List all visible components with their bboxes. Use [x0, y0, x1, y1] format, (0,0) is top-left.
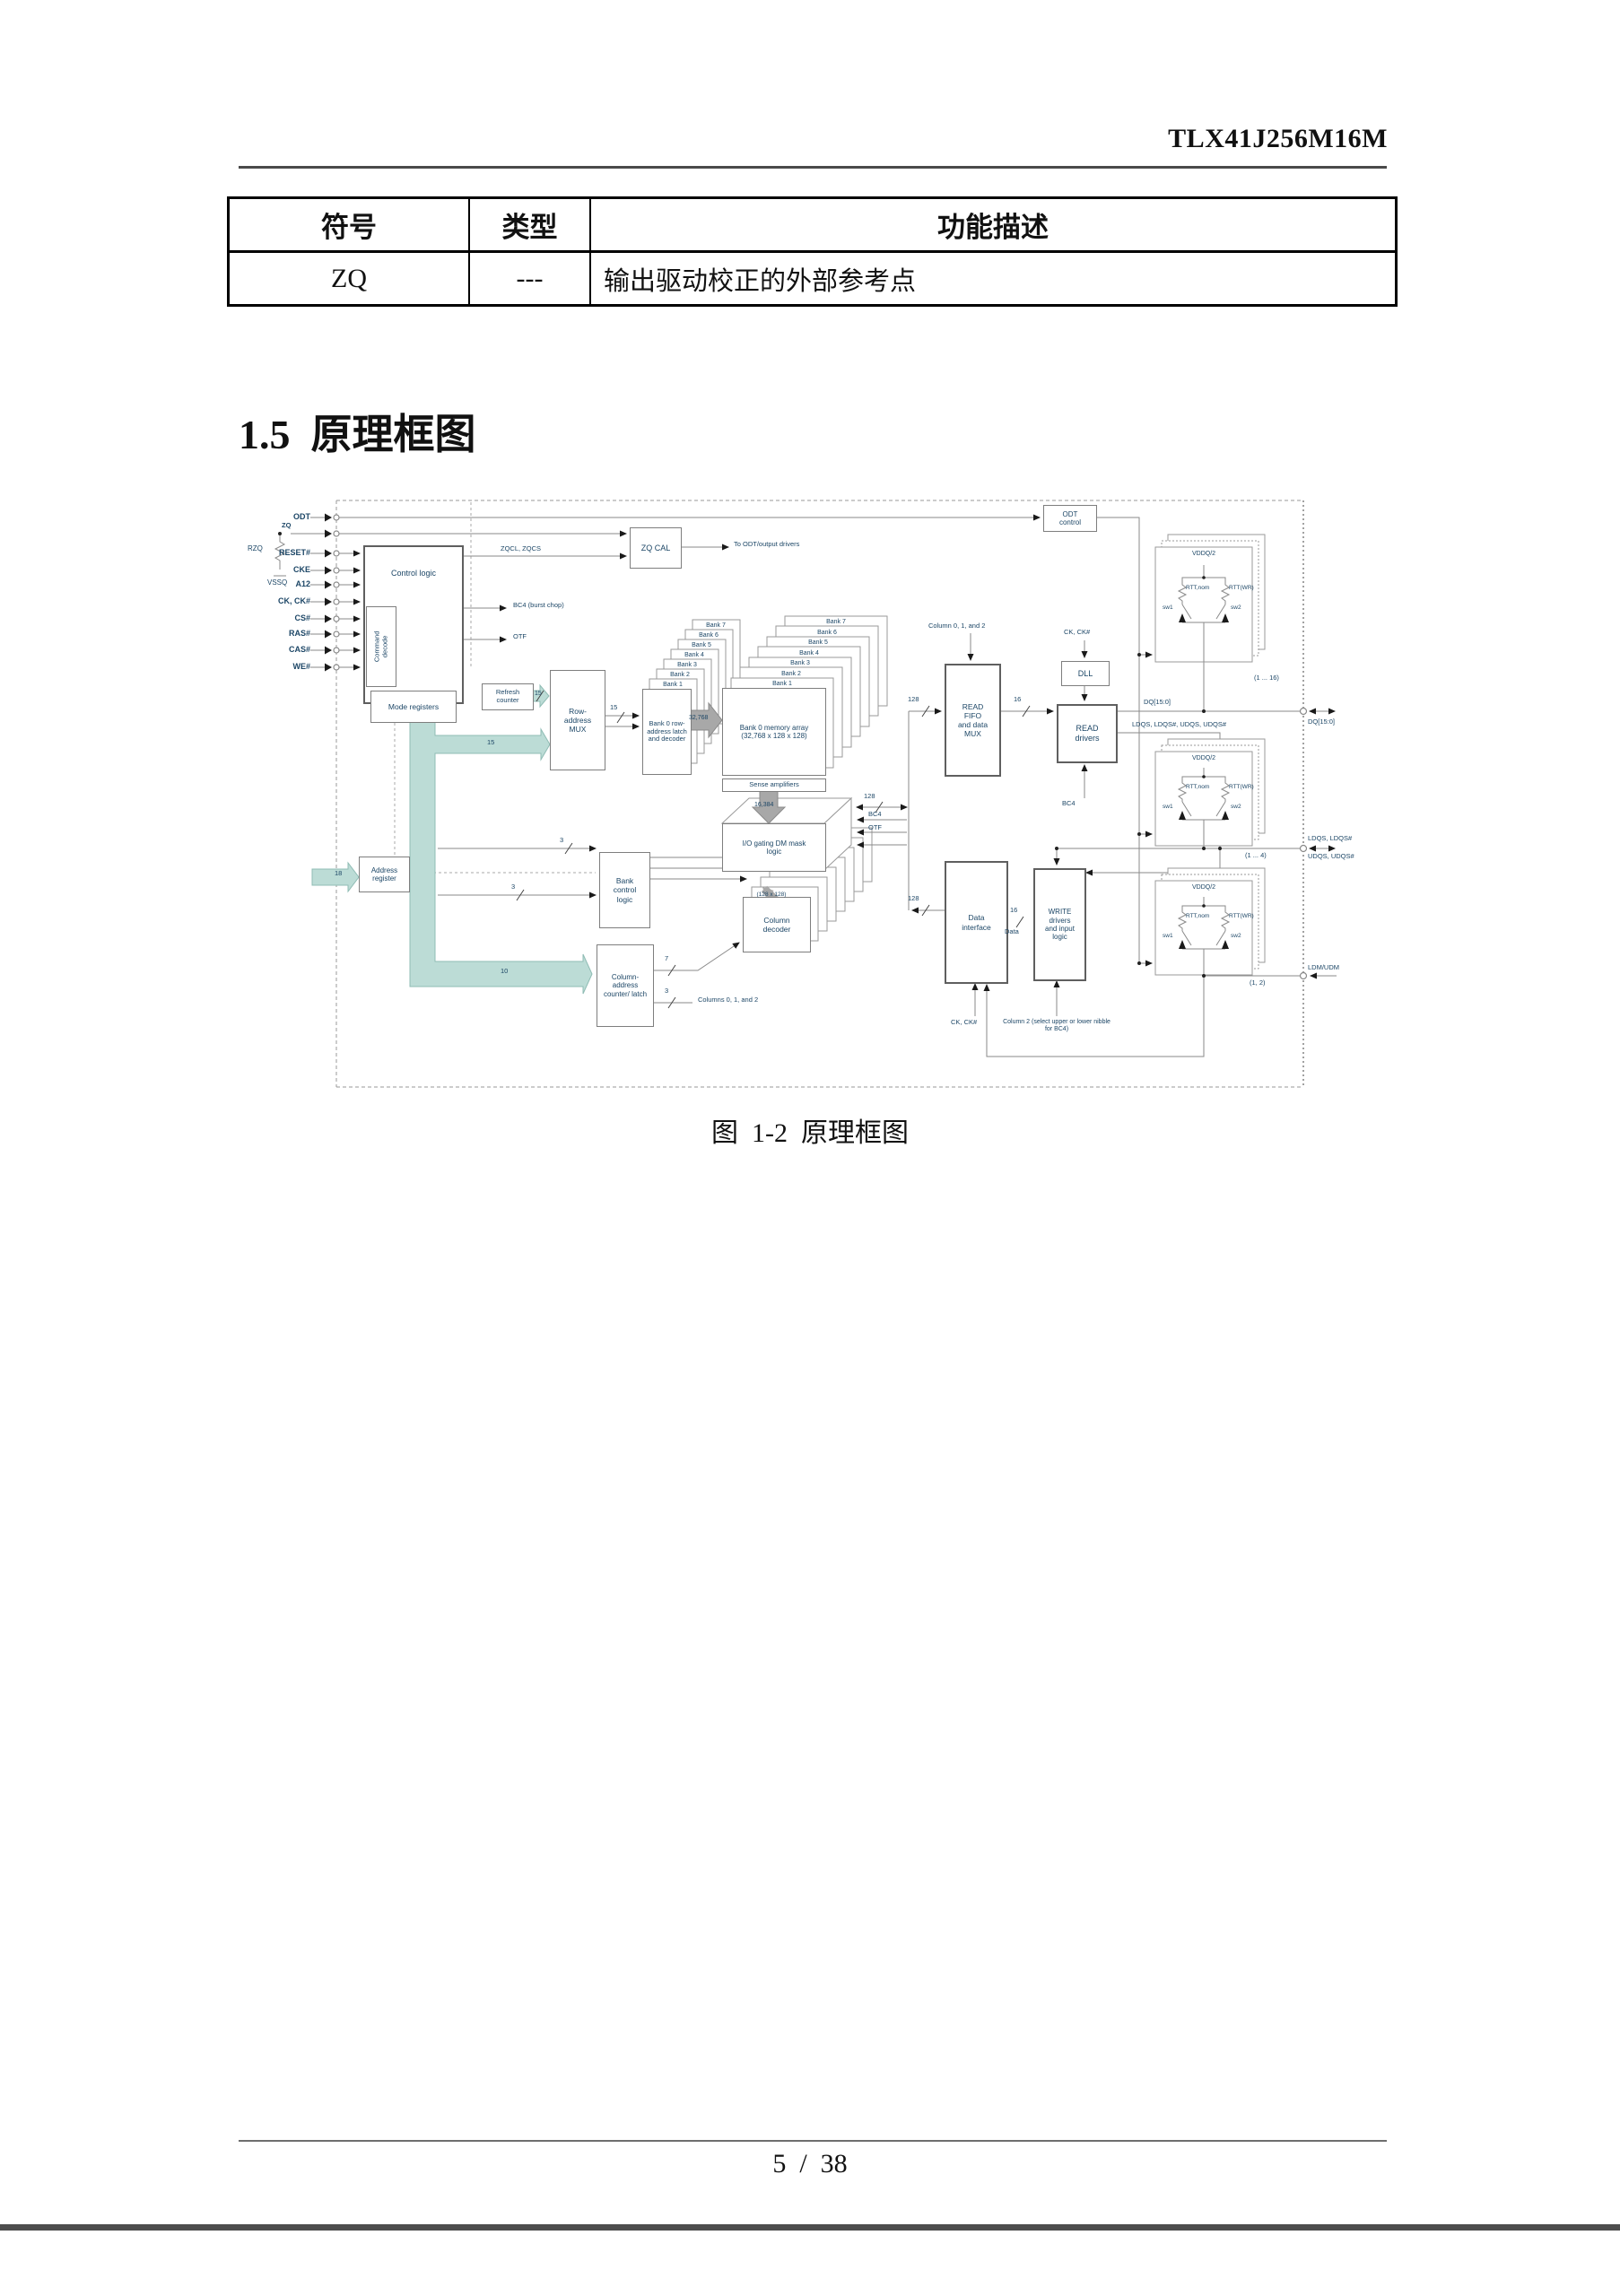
- column-address-counter-block: Column- address counter/ latch: [597, 944, 654, 1027]
- pin-label-cs: CS#: [269, 613, 310, 622]
- sw2-label-dq: sw2: [1231, 604, 1241, 611]
- bank-control-block: Bank control logic: [599, 852, 650, 928]
- bank-label: Bank 7: [826, 619, 846, 625]
- col-header-description: 功能描述: [591, 199, 1395, 250]
- address-register-block: Address register: [359, 857, 410, 892]
- pin-label-ck: CK, CK#: [269, 596, 310, 605]
- pin-label-zq: ZQ: [282, 522, 291, 529]
- read-fifo-block: READ FIFO and data MUX: [945, 664, 1001, 777]
- figure-caption: 图 1-2 原理框图: [0, 1110, 1620, 1150]
- write-drivers-block: WRITE drivers and input logic: [1033, 868, 1086, 981]
- sw2-label-dm: sw2: [1231, 933, 1241, 939]
- dll-block: DLL: [1061, 661, 1110, 686]
- fifo-128-label: 128: [908, 696, 919, 703]
- command-decode-block: Command decode: [366, 606, 396, 687]
- page-number: 5 / 38: [0, 2149, 1620, 2179]
- bank-bus-width-a: 3: [560, 837, 563, 844]
- dqs-boundary-pad: [1301, 846, 1307, 852]
- col-low-width: 3: [665, 987, 668, 995]
- bank-bus-width-b: 3: [511, 883, 515, 891]
- bank-label: Bank 6: [817, 630, 837, 636]
- doc-number: TLX41J256M16M: [1168, 124, 1388, 154]
- row-32768-label: 32,768: [689, 715, 708, 722]
- col-128x128-label: (128 x 128): [753, 891, 789, 898]
- bank-label: Bank 4: [684, 652, 704, 658]
- pin-label-cke: CKE: [269, 565, 310, 574]
- sense-amplifiers-block: Sense amplifiers: [722, 778, 826, 792]
- vddq-label-dqs: VDDQ/2: [1179, 755, 1229, 762]
- rtt-nom-label-dm: RTT,nom: [1186, 913, 1209, 919]
- bank-label: Bank 2: [670, 672, 690, 678]
- fifo-16-label: 16: [1014, 696, 1021, 703]
- ext-ldqs-label: LDQS, LDQS#: [1308, 835, 1352, 842]
- count-dqs-label: (1 ... 4): [1245, 852, 1267, 859]
- row-address-mux-block: Row- address MUX: [550, 670, 605, 770]
- header-rule: [239, 166, 1387, 169]
- ext-dm-label: LDM/UDM: [1308, 964, 1339, 971]
- mux-bus-width: 15: [610, 704, 617, 711]
- count-dq-label: (1 ... 16): [1254, 674, 1279, 682]
- bottom-bar: [0, 2224, 1620, 2231]
- refresh-counter-block: Refresh counter: [482, 683, 534, 710]
- rtt-wr-label-dm: RTT(WR): [1229, 913, 1254, 919]
- zq-cal-block: ZQ CAL: [630, 527, 682, 569]
- bank-label: Bank 5: [692, 642, 711, 648]
- to-odt-drivers-label: To ODT/output drivers: [734, 541, 799, 548]
- bank-label: Bank 6: [699, 632, 719, 639]
- cell-symbol: ZQ: [230, 253, 468, 304]
- vddq-label-dq: VDDQ/2: [1179, 551, 1229, 558]
- rtt-wr-label-dq: RTT(WR): [1229, 585, 1254, 591]
- io-gating-block: I/O gating DM mask logic: [722, 823, 826, 872]
- block-diagram: Bank 7 Bank 6 Bank 5 Bank 4 Bank 3 Bank …: [269, 491, 1386, 1094]
- col-header-type: 类型: [468, 199, 591, 250]
- otf-label: OTF: [513, 633, 527, 640]
- section-title: 1.5 原理框图: [239, 402, 476, 461]
- refresh-bus-width: 15: [535, 691, 542, 698]
- bank-label: Bank 4: [799, 650, 819, 657]
- odt-control-block: ODT control: [1043, 505, 1097, 532]
- addr-bus-width: 18: [335, 870, 342, 877]
- rtt-nom-label-dq: RTT,nom: [1186, 585, 1209, 591]
- column2-note-label: Column 2 (select upper or lower nibble f…: [1003, 1019, 1110, 1033]
- col-high-width: 7: [665, 955, 668, 962]
- sw1-label-dqs: sw1: [1163, 804, 1173, 810]
- bank-label: Bank 3: [790, 660, 810, 666]
- sw1-label-dq: sw1: [1163, 604, 1173, 611]
- bank-row-latch-block: Bank 0 row- address latch and decoder: [642, 689, 692, 775]
- dqs-line-label: LDQS, LDQS#, UDQS, UDQS#: [1132, 721, 1226, 728]
- vddq-label-dm: VDDQ/2: [1179, 884, 1229, 891]
- dq-line-label: DQ[15:0]: [1144, 699, 1171, 706]
- mode-registers-block: Mode registers: [370, 691, 457, 723]
- footer-rule: [239, 2140, 1387, 2142]
- bank-label: Bank 7: [706, 622, 726, 629]
- bank-label: Bank 2: [781, 671, 801, 677]
- count-dm-label: (1, 2): [1250, 979, 1266, 987]
- pin-table-header-row: 符号 类型 功能描述: [230, 199, 1395, 253]
- pin-table: 符号 类型 功能描述 ZQ --- 输出驱动校正的外部参考点: [227, 196, 1398, 307]
- rzq-label: RZQ: [248, 545, 263, 553]
- zqcl-label: ZQCL, ZQCS: [501, 545, 541, 552]
- memory-array-block: Bank 0 memory array (32,768 x 128 x 128): [722, 688, 826, 776]
- io-otf-label: OTF: [868, 824, 882, 831]
- pin-label-reset: RESET#: [269, 548, 310, 557]
- bc4-read-label: BC4: [1062, 800, 1076, 807]
- ext-dq-label: DQ[15:0]: [1308, 718, 1335, 726]
- bank-label: Bank 5: [808, 639, 828, 646]
- data-16-label: 16: [1010, 907, 1017, 914]
- table-row: ZQ --- 输出驱动校正的外部参考点: [230, 253, 1395, 304]
- col-bus-width: 10: [501, 968, 508, 975]
- sw2-label-dqs: sw2: [1231, 804, 1241, 810]
- data-word-label: Data: [1005, 928, 1019, 935]
- cell-type: ---: [468, 253, 591, 304]
- fifo-column-label: Column 0, 1, and 2: [928, 622, 985, 630]
- sense-16384-label: 16,384: [754, 802, 773, 809]
- col-header-symbol: 符号: [230, 199, 468, 250]
- sw1-label-dm: sw1: [1163, 933, 1173, 939]
- read-drivers-block: READ drivers: [1057, 704, 1118, 763]
- dq-boundary-pad: [1301, 709, 1307, 715]
- pin-label-ras: RAS#: [269, 629, 310, 638]
- datasheet-page: TLX41J256M16M 符号 类型 功能描述 ZQ --- 输出驱动校正的外…: [0, 0, 1620, 2296]
- ck-di-label: CK, CK#: [951, 1019, 977, 1026]
- bank-label: Bank 3: [677, 662, 697, 668]
- columns-012-label: Columns 0, 1, and 2: [698, 996, 758, 1004]
- pin-label-we: WE#: [269, 662, 310, 671]
- row-bus-width: 15: [487, 739, 494, 746]
- di-128-label: 128: [908, 895, 919, 902]
- io-128-label: 128: [864, 793, 875, 800]
- pin-label-odt: ODT: [269, 512, 310, 521]
- vssq-label: VSSQ: [267, 579, 287, 587]
- data-interface-block: Data interface: [945, 861, 1008, 984]
- cell-description: 输出驱动校正的外部参考点: [591, 253, 1395, 304]
- dm-boundary-pad: [1301, 973, 1307, 979]
- rtt-nom-label-dqs: RTT,nom: [1186, 784, 1209, 790]
- rtt-wr-label-dqs: RTT(WR): [1229, 784, 1254, 790]
- ck-dll-label: CK, CK#: [1064, 629, 1090, 636]
- ext-udqs-label: UDQS, UDQS#: [1308, 853, 1354, 860]
- pin-label-cas: CAS#: [269, 645, 310, 654]
- io-bc4-label: BC4: [868, 811, 882, 818]
- bank-label: Bank 1: [772, 681, 792, 687]
- column-decoder-block: Column decoder: [743, 897, 811, 952]
- bc4-burst-chop-label: BC4 (burst chop): [513, 602, 564, 609]
- bank-label: Bank 1: [663, 682, 683, 688]
